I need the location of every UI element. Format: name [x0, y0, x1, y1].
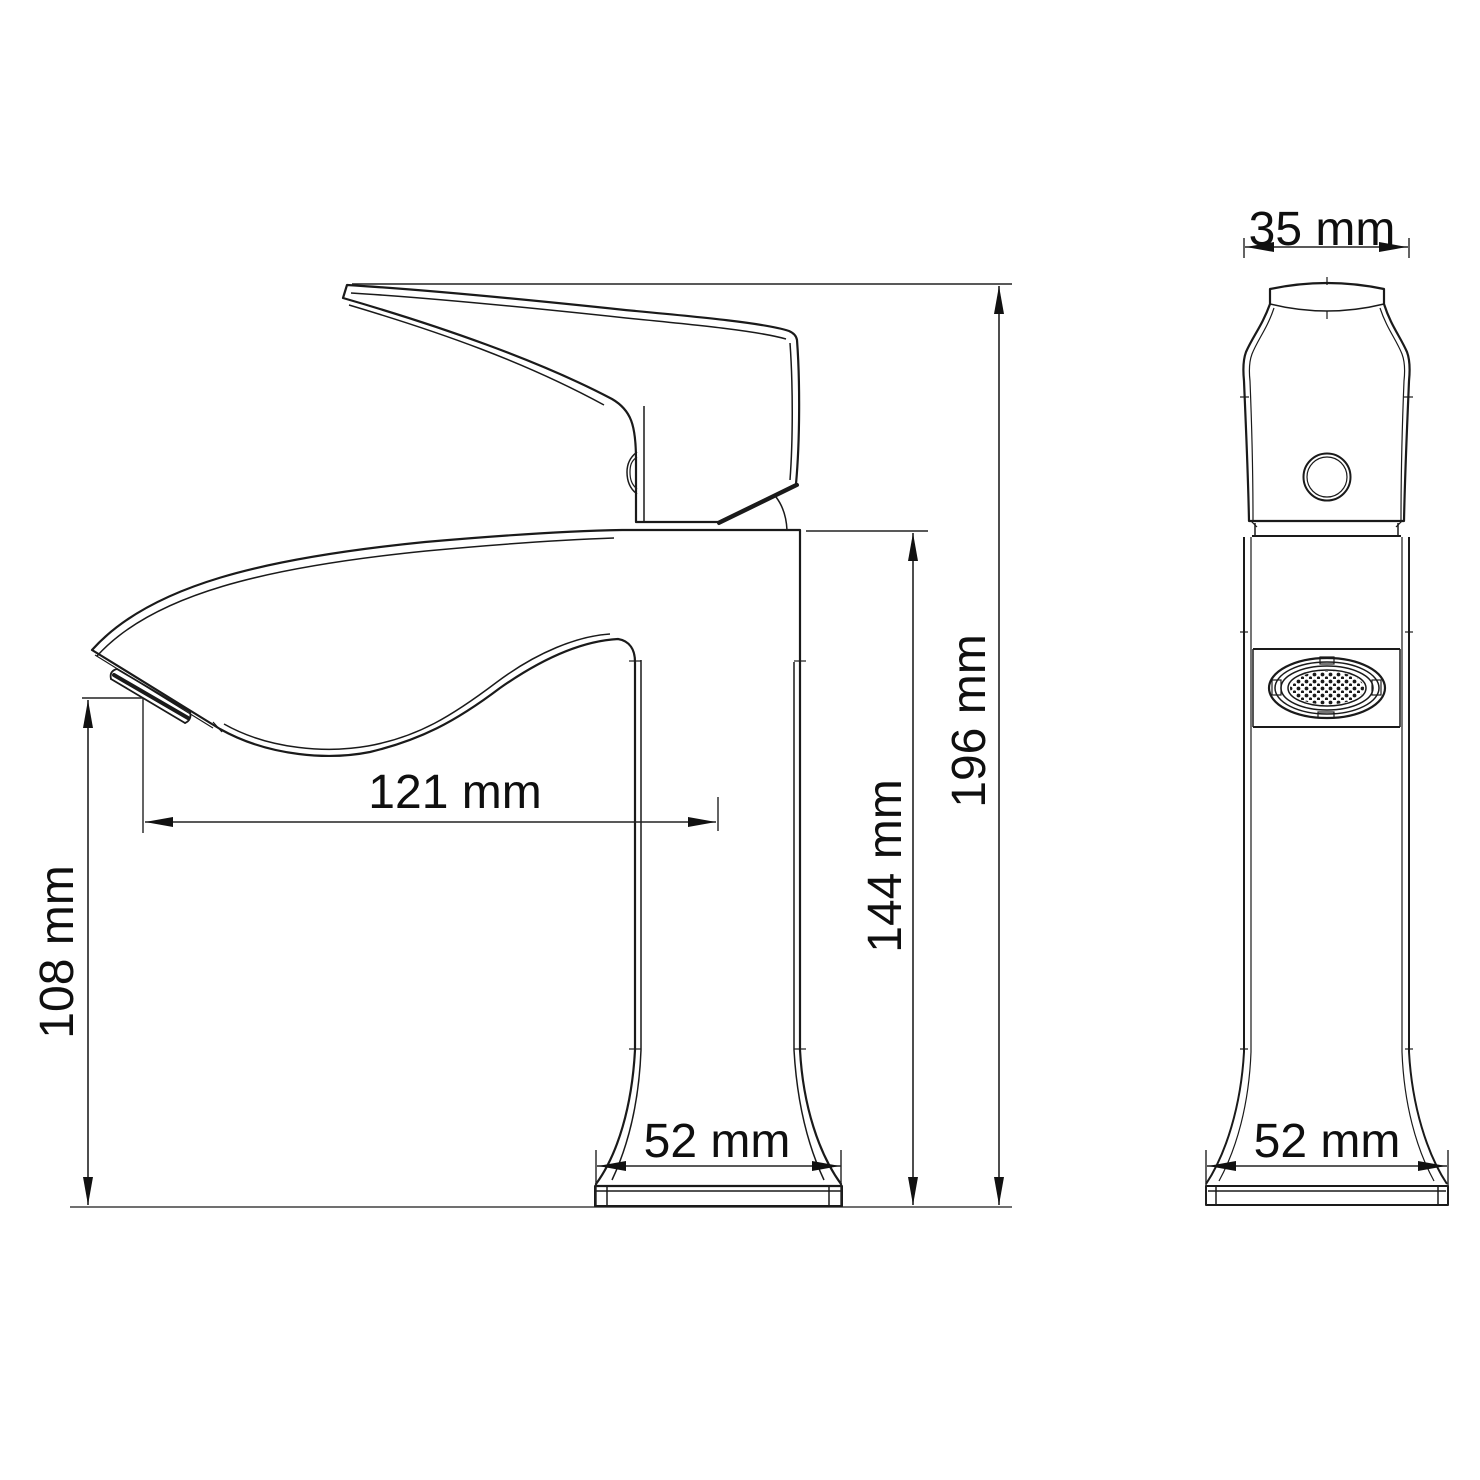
arrow-up: [908, 533, 918, 561]
dim-label-total-height: 196 mm: [943, 634, 996, 807]
aerator-mesh: [1290, 672, 1364, 705]
dimension-body-height: 144 mm: [806, 531, 928, 1205]
dim-label-spout-height: 108 mm: [31, 865, 84, 1038]
arrow-down: [908, 1177, 918, 1205]
dim-label-spout-reach: 121 mm: [368, 766, 541, 819]
dim-label-body-height: 144 mm: [859, 779, 912, 952]
dim-label-base-width-side: 52 mm: [644, 1115, 791, 1168]
base-plate-front-outline: [1206, 1186, 1448, 1205]
front-view: [1206, 277, 1448, 1205]
front-collar: [1251, 521, 1402, 536]
arrow-down: [994, 1177, 1004, 1205]
faucet-body-spout-outline: [92, 530, 841, 1186]
side-view: [92, 285, 842, 1206]
arrow-left: [145, 817, 173, 827]
front-body-left-inner: [1219, 537, 1251, 1181]
dimension-handle-width-front: 35 mm: [1244, 203, 1409, 258]
base-plate-side-outline: [595, 1186, 842, 1206]
arrow-up: [83, 700, 93, 728]
base-plate-front: [1206, 1186, 1448, 1205]
arrow-left: [1208, 1161, 1236, 1171]
front-body-right-outer: [1409, 537, 1447, 1184]
drawing-canvas: 108 mm 121 mm 144 mm 196 mm: [0, 0, 1480, 1480]
base-plate-side: [595, 1186, 842, 1206]
arrow-down: [83, 1177, 93, 1205]
handle-joint-arc: [776, 497, 787, 530]
front-aerator: [1269, 657, 1385, 718]
arrow-up: [994, 286, 1004, 314]
dim-label-base-width-front: 52 mm: [1254, 1115, 1401, 1168]
arrow-right: [1418, 1161, 1446, 1171]
faucet-technical-drawing: 108 mm 121 mm 144 mm 196 mm: [0, 0, 1480, 1480]
dim-label-handle-width: 35 mm: [1249, 203, 1396, 256]
handle-lever-outline: [343, 285, 799, 522]
dimension-spout-height: 108 mm: [31, 698, 143, 1205]
front-body-left-outer: [1206, 537, 1244, 1184]
front-body-right-inner: [1402, 537, 1434, 1181]
